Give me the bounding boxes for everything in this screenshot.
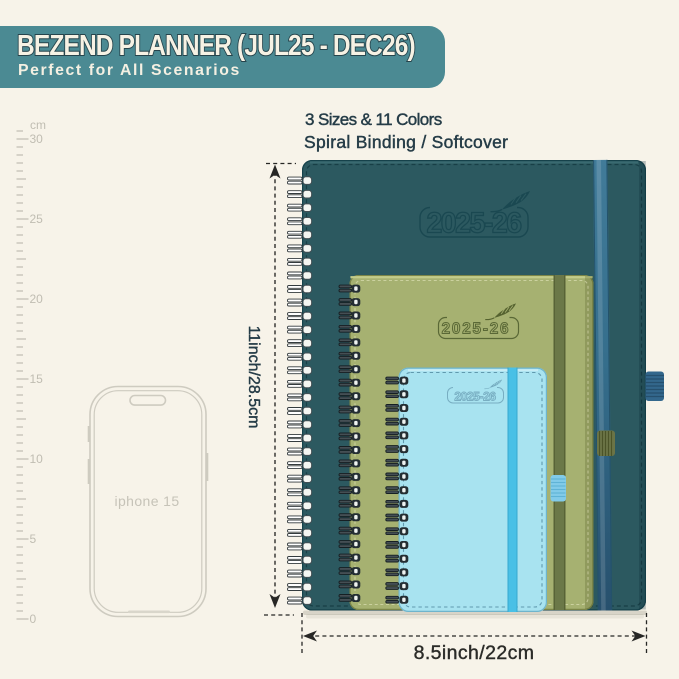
svg-text:cm: cm [30, 118, 46, 132]
svg-text:2025-26: 2025-26 [454, 390, 496, 404]
svg-text:2025-26: 2025-26 [426, 208, 521, 240]
svg-text:2025-26: 2025-26 [442, 321, 511, 338]
svg-text:10: 10 [30, 452, 44, 466]
svg-text:5: 5 [30, 532, 37, 546]
svg-text:0: 0 [30, 612, 37, 626]
svg-text:20: 20 [30, 292, 44, 306]
svg-text:25: 25 [30, 212, 44, 226]
svg-text:15: 15 [30, 372, 44, 386]
svg-text:30: 30 [30, 132, 44, 146]
